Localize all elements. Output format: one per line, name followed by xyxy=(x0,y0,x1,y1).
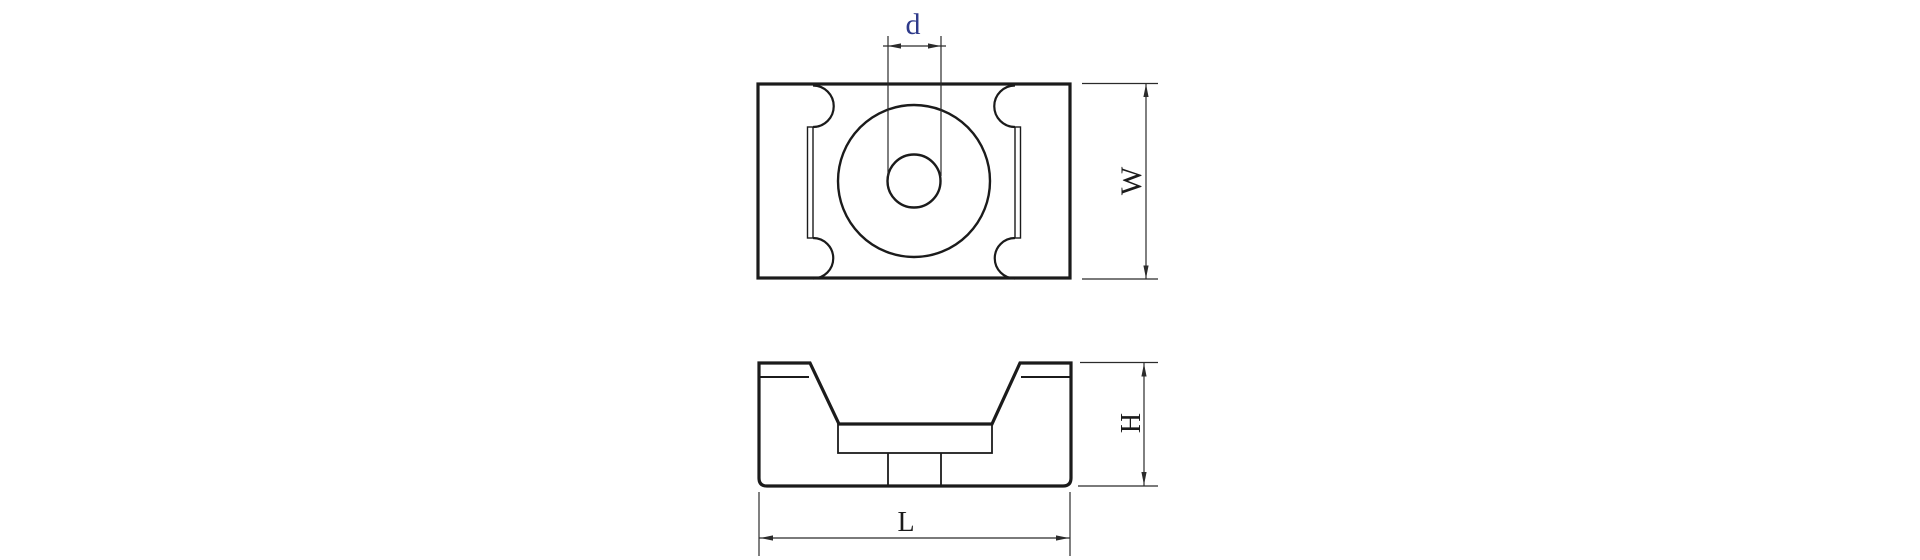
top-view-outline xyxy=(758,84,1070,278)
strap-slot-right xyxy=(1015,127,1021,238)
w-arrow-up-icon xyxy=(1143,84,1148,97)
h-arrow-up-icon xyxy=(1141,364,1146,377)
d-arrow-left-icon xyxy=(888,43,901,48)
slot-ear-bottom-right xyxy=(995,238,1015,279)
screw-hole-circle xyxy=(888,155,941,208)
l-arrow-left-icon xyxy=(760,535,773,540)
slot-ear-bottom-left xyxy=(813,238,833,279)
front-view xyxy=(759,363,1071,486)
slot-ear-top-right xyxy=(994,86,1015,128)
l-dimension-label: L xyxy=(897,507,914,538)
h-arrow-down-icon xyxy=(1141,472,1146,485)
slot-ear-top-left xyxy=(813,86,834,128)
d-dimension-label: d xyxy=(906,8,921,41)
dimension-h: H xyxy=(1078,363,1158,487)
boss-circle xyxy=(838,105,990,257)
w-arrow-down-icon xyxy=(1143,266,1148,279)
strap-channel-band xyxy=(838,424,992,453)
h-dimension-label: H xyxy=(1116,413,1147,433)
l-arrow-right-icon xyxy=(1056,535,1069,540)
dimension-w: W xyxy=(1082,84,1158,280)
top-view xyxy=(758,84,1070,279)
dimension-d: d xyxy=(883,8,946,176)
technical-drawing-sheet: d W H L xyxy=(0,0,1920,560)
strap-slot-left xyxy=(808,127,814,238)
cable-tie-mount-drawing: d W H L xyxy=(0,0,1920,560)
dimension-l: L xyxy=(759,492,1070,556)
w-dimension-label: W xyxy=(1115,166,1148,195)
d-arrow-right-icon xyxy=(928,43,941,48)
